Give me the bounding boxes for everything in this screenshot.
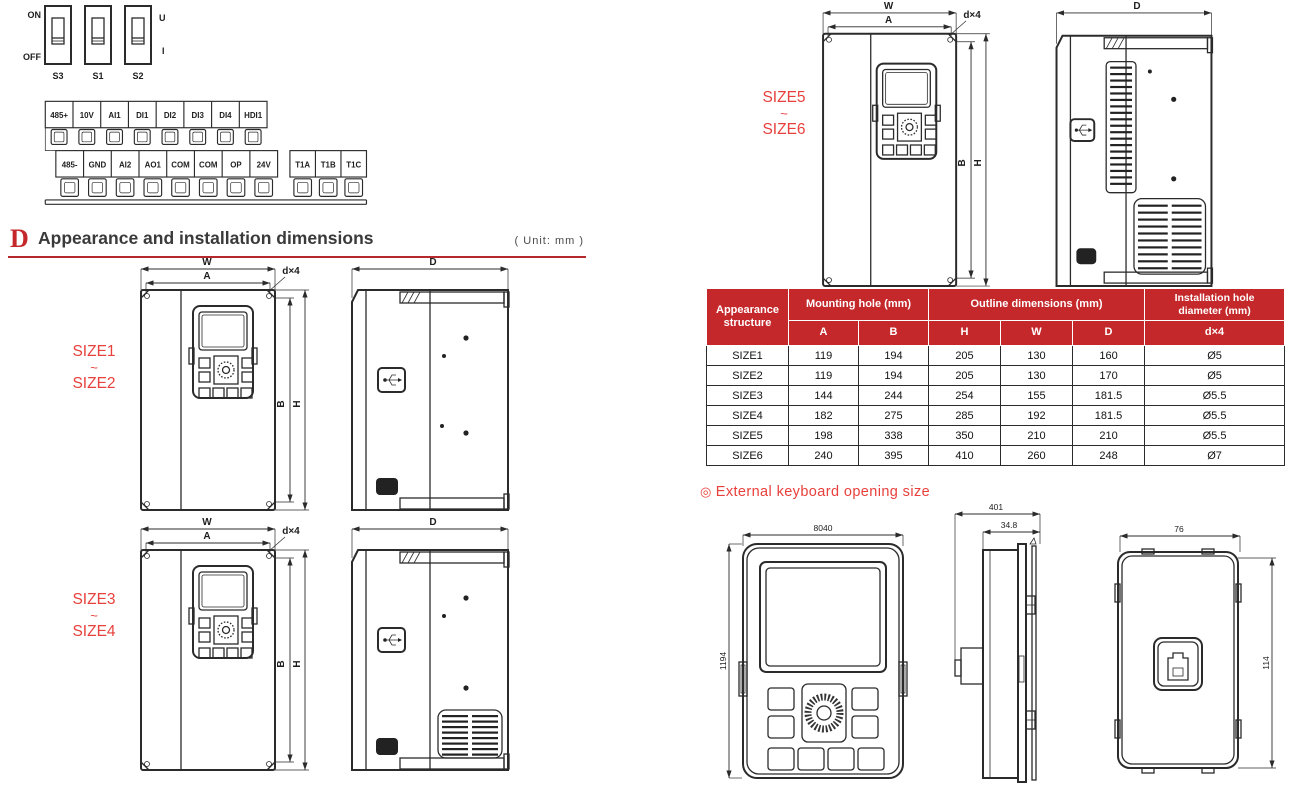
table-subheader: A xyxy=(789,321,859,346)
table-cell: 155 xyxy=(1001,386,1073,406)
dim-h: H xyxy=(973,159,984,166)
terminal-label: 10V xyxy=(80,111,95,120)
table-cell: 194 xyxy=(859,366,929,386)
table-cell: Ø5 xyxy=(1145,366,1285,386)
page-title: Appearance and installation dimensions xyxy=(38,228,374,249)
size56-side-view: D xyxy=(1042,2,1222,292)
table-cell: Ø5.5 xyxy=(1145,406,1285,426)
rj45-connector-icon xyxy=(1154,638,1202,690)
dim-b: B xyxy=(276,400,287,407)
kb-back-height-dim: 114 xyxy=(1261,656,1271,670)
terminal-label: AI2 xyxy=(119,160,132,169)
size12-side-view: D xyxy=(338,258,518,516)
dip-s1-label: S1 xyxy=(92,71,103,81)
screw-terminals-relay xyxy=(294,179,363,197)
vent-grille xyxy=(438,710,502,758)
dip-switch xyxy=(45,6,71,64)
table-cell: 182 xyxy=(789,406,859,426)
rear-connector xyxy=(955,648,983,684)
table-cell: SIZE1 xyxy=(707,346,789,366)
dim-w: W xyxy=(202,517,212,528)
table-cell: 205 xyxy=(929,366,1001,386)
terminal-label: T1A xyxy=(295,160,310,169)
keypad xyxy=(189,566,257,658)
vent-grille xyxy=(1134,199,1206,274)
size34-side-view: D xyxy=(338,516,518,778)
terminal-label: AI1 xyxy=(108,111,121,120)
table-group-mounting: Mounting hole (mm) xyxy=(789,289,929,321)
table-subheader: d×4 xyxy=(1145,321,1285,346)
kb-back-width-dim: 76 xyxy=(1174,524,1184,534)
dip-switch xyxy=(85,6,111,64)
table-cell: SIZE4 xyxy=(707,406,789,426)
dim-d4: d×4 xyxy=(282,526,300,537)
terminal-label: HDI1 xyxy=(244,111,263,120)
dim-b: B xyxy=(957,159,968,166)
terminal-label: 24V xyxy=(257,160,272,169)
terminal-label: DI2 xyxy=(164,111,177,120)
knob-dial xyxy=(218,362,234,378)
table-cell: 181.5 xyxy=(1073,406,1145,426)
heatsink-fins xyxy=(1106,62,1136,193)
dim-h: H xyxy=(292,660,303,667)
circle-bullet-icon: ◎ xyxy=(700,484,712,499)
terminal-label: COM xyxy=(171,160,190,169)
keyboard-side-view: 401 34.8 xyxy=(943,498,1068,784)
knob-dial xyxy=(218,622,234,638)
table-row: SIZE2 119 194 205 130 170 Ø5 xyxy=(707,366,1285,386)
size34-front-view: W A d×4 H B xyxy=(133,516,313,778)
terminal-label: DI3 xyxy=(192,111,205,120)
table-cell: 205 xyxy=(929,346,1001,366)
table-cell: 338 xyxy=(859,426,929,446)
table-cell: 130 xyxy=(1001,366,1073,386)
size12-front-view: W A d×4 H B xyxy=(133,258,313,516)
terminal-label: 485- xyxy=(62,160,78,169)
usb-icon xyxy=(1070,119,1094,141)
dim-d: D xyxy=(1133,1,1140,12)
table-row: SIZE5 198 338 350 210 210 Ø5.5 xyxy=(707,426,1285,446)
dim-d4: d×4 xyxy=(282,266,300,277)
table-subheader: D xyxy=(1073,321,1145,346)
table-cell: 198 xyxy=(789,426,859,446)
terminal-strip-figure: 485+ 10V AI1 DI1 DI2 DI3 DI4 HDI1 485- G… xyxy=(40,96,370,207)
table-row: SIZE1 119 194 205 130 160 Ø5 xyxy=(707,346,1285,366)
keyboard-front-view: 8040 1194 xyxy=(720,516,915,784)
table-row: SIZE4 182 275 285 192 181.5 Ø5.5 xyxy=(707,406,1285,426)
terminal-label: GND xyxy=(89,160,107,169)
table-group-install: Installation hole diameter (mm) xyxy=(1145,289,1285,321)
knob-dial xyxy=(902,119,918,135)
terminal-label: OP xyxy=(230,160,241,169)
terminal-label: T1C xyxy=(346,160,361,169)
table-subheader: W xyxy=(1001,321,1073,346)
terminal-label: DI1 xyxy=(136,111,149,120)
terminal-label: T1B xyxy=(321,160,336,169)
table-cell: 160 xyxy=(1073,346,1145,366)
keypad xyxy=(189,306,257,398)
table-cell: 275 xyxy=(859,406,929,426)
section-header: D Appearance and installation dimensions… xyxy=(8,228,586,256)
terminal-label: AO1 xyxy=(145,160,162,169)
table-row: SIZE6 240 395 410 260 248 Ø7 xyxy=(707,446,1285,466)
table-cell: 285 xyxy=(929,406,1001,426)
keypad-buttons xyxy=(768,684,884,770)
table-cell: SIZE5 xyxy=(707,426,789,446)
dip-s3-label: S3 xyxy=(52,71,63,81)
table-cell: Ø5.5 xyxy=(1145,426,1285,446)
dim-d: D xyxy=(429,257,436,268)
dip-switch-figure: ON OFF U I S3 S1 S2 xyxy=(15,2,190,87)
display-screen xyxy=(199,572,247,610)
table-cell: 260 xyxy=(1001,446,1073,466)
dim-b: B xyxy=(276,660,287,667)
table-cell: 194 xyxy=(859,346,929,366)
display-screen xyxy=(760,562,886,672)
table-cell: SIZE3 xyxy=(707,386,789,406)
section-badge: D xyxy=(10,224,29,254)
table-cell: 410 xyxy=(929,446,1001,466)
dip-i-label: I xyxy=(162,46,165,56)
table-cell: 170 xyxy=(1073,366,1145,386)
table-cell: 254 xyxy=(929,386,1001,406)
dip-switch xyxy=(125,6,151,64)
dim-w: W xyxy=(202,257,212,268)
table-cell: 210 xyxy=(1001,426,1073,446)
screw-terminals-small xyxy=(51,130,261,145)
usb-icon xyxy=(378,368,405,392)
unit-note: ( Unit: mm ) xyxy=(515,235,584,247)
table-cell: 181.5 xyxy=(1073,386,1145,406)
table-cell: 248 xyxy=(1073,446,1145,466)
display-screen xyxy=(883,70,931,108)
usb-icon xyxy=(378,628,405,652)
kb-depth-inner-dim: 34.8 xyxy=(1001,520,1018,530)
table-cell: 240 xyxy=(789,446,859,466)
dim-a: A xyxy=(885,15,892,26)
table-cell: SIZE6 xyxy=(707,446,789,466)
keyboard-back-view: 76 114 xyxy=(1076,522,1281,784)
page: ON OFF U I S3 S1 S2 485+ 10V AI1 DI1 DI2… xyxy=(0,0,1289,786)
keypad xyxy=(873,64,941,159)
kb-height-dim: 1194 xyxy=(718,652,728,671)
dim-w: W xyxy=(884,1,894,12)
table-cell: 192 xyxy=(1001,406,1073,426)
table-cell: 350 xyxy=(929,426,1001,446)
dim-a: A xyxy=(203,531,210,542)
dim-d: D xyxy=(429,517,436,528)
terminal-label: COM xyxy=(199,160,218,169)
kb-depth-outer-dim: 401 xyxy=(989,502,1003,512)
size56-front-view: W A d×4 H B xyxy=(812,2,997,292)
table-cell: 244 xyxy=(859,386,929,406)
table-cell: 130 xyxy=(1001,346,1073,366)
table-cell: 119 xyxy=(789,366,859,386)
dimension-table: Appearance structure Mounting hole (mm) … xyxy=(706,288,1285,466)
table-cell: Ø5.5 xyxy=(1145,386,1285,406)
table-group-outline: Outline dimensions (mm) xyxy=(929,289,1145,321)
terminal-label: DI4 xyxy=(219,111,232,120)
dim-h: H xyxy=(292,400,303,407)
dip-u-label: U xyxy=(159,13,166,23)
table-corner-header: Appearance structure xyxy=(707,289,789,346)
table-cell: 144 xyxy=(789,386,859,406)
table-cell: SIZE2 xyxy=(707,366,789,386)
dip-off-label: OFF xyxy=(23,52,41,62)
kb-width-dim: 8040 xyxy=(814,523,833,533)
dip-on-label: ON xyxy=(28,10,42,20)
display-screen xyxy=(199,312,247,350)
terminal-label: 485+ xyxy=(50,111,68,120)
knob-dial xyxy=(808,697,840,729)
screw-terminals-large xyxy=(61,179,273,197)
table-row: SIZE3 144 244 254 155 181.5 Ø5.5 xyxy=(707,386,1285,406)
table-cell: 210 xyxy=(1073,426,1145,446)
table-cell: Ø7 xyxy=(1145,446,1285,466)
table-subheader: H xyxy=(929,321,1001,346)
table-subheader: B xyxy=(859,321,929,346)
dim-d4: d×4 xyxy=(963,10,981,21)
dim-a: A xyxy=(203,271,210,282)
table-cell: 119 xyxy=(789,346,859,366)
table-cell: Ø5 xyxy=(1145,346,1285,366)
keyboard-section-title: ◎External keyboard opening size xyxy=(700,484,930,500)
table-cell: 395 xyxy=(859,446,929,466)
dip-s2-label: S2 xyxy=(132,71,143,81)
